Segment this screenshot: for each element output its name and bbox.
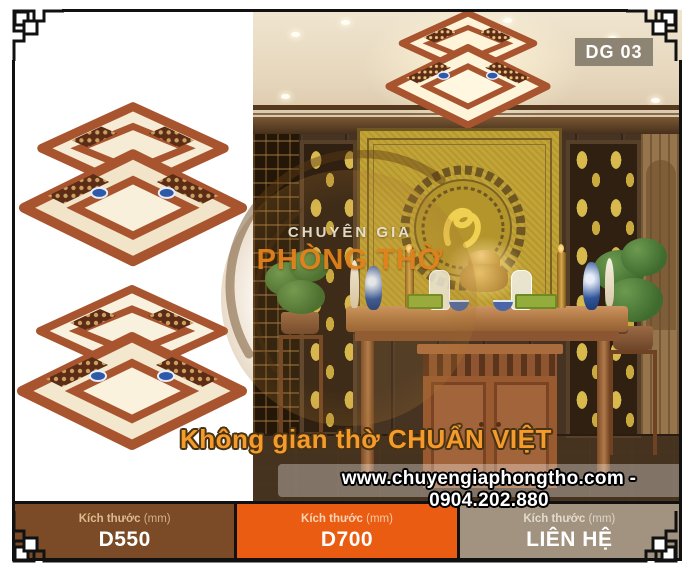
- size-label-text: Kích thước: [301, 513, 363, 525]
- offering-box: [407, 294, 443, 309]
- size-unit-text: (mm): [588, 513, 615, 525]
- size-label-text: Kích thước: [79, 513, 141, 525]
- tagline-text: Không gian thờ CHUẨN VIỆT: [180, 424, 552, 455]
- size-value: LIÊN HỆ: [460, 528, 679, 552]
- porcelain-vase-left: [365, 266, 382, 310]
- size-label: Kích thước (mm): [460, 513, 679, 525]
- size-label: Kích thước (mm): [15, 513, 234, 525]
- cabinet-top: [417, 344, 563, 354]
- size-value: D700: [237, 528, 456, 552]
- size-bar-d550: Kích thước (mm) D550: [15, 504, 234, 558]
- product-lamp-1: [14, 90, 252, 272]
- spotlight-icon: [281, 94, 290, 99]
- crane-statue-right: [605, 258, 614, 306]
- altar-table-apron: [355, 331, 619, 341]
- spotlight-icon: [291, 32, 300, 37]
- altar-table-leg: [597, 330, 610, 482]
- size-unit-text: (mm): [366, 513, 393, 525]
- candle-flame-icon: [558, 244, 564, 253]
- size-bar-d700: Kích thước (mm) D700: [234, 504, 456, 558]
- altar-table-top: [346, 306, 628, 332]
- plant-stand-right: [609, 350, 657, 455]
- bonsai-pot-left: [281, 312, 319, 334]
- crane-statue-left: [350, 260, 359, 308]
- size-value: D550: [15, 528, 234, 552]
- altar-table-leg: [361, 330, 374, 482]
- size-unit-text: (mm): [144, 513, 171, 525]
- spotlight-icon: [651, 98, 660, 103]
- candlestick-right: [557, 252, 566, 308]
- cabinet-carved-band: [423, 354, 557, 376]
- size-label: Kích thước (mm): [237, 513, 456, 525]
- bonsai-right: [621, 238, 667, 276]
- plant-stand-left: [279, 335, 323, 437]
- product-code-badge: DG 03: [575, 38, 653, 66]
- bonsai-left: [289, 250, 329, 282]
- offering-box: [515, 294, 557, 309]
- porcelain-vase-right: [583, 262, 600, 310]
- censer: [460, 264, 508, 292]
- size-bar-lien-he: Kích thước (mm) LIÊN HỆ: [457, 504, 679, 558]
- spotlight-icon: [341, 20, 350, 25]
- website-phone-text: www.chuyengiaphongtho.com - 0904.202.880: [296, 468, 682, 512]
- promo-poster: DG 03: [0, 0, 690, 575]
- size-label-text: Kích thước: [523, 513, 585, 525]
- bonsai-left: [277, 280, 325, 314]
- ceiling-lamp-installed: [381, 10, 555, 128]
- candle-flame-icon: [406, 244, 412, 253]
